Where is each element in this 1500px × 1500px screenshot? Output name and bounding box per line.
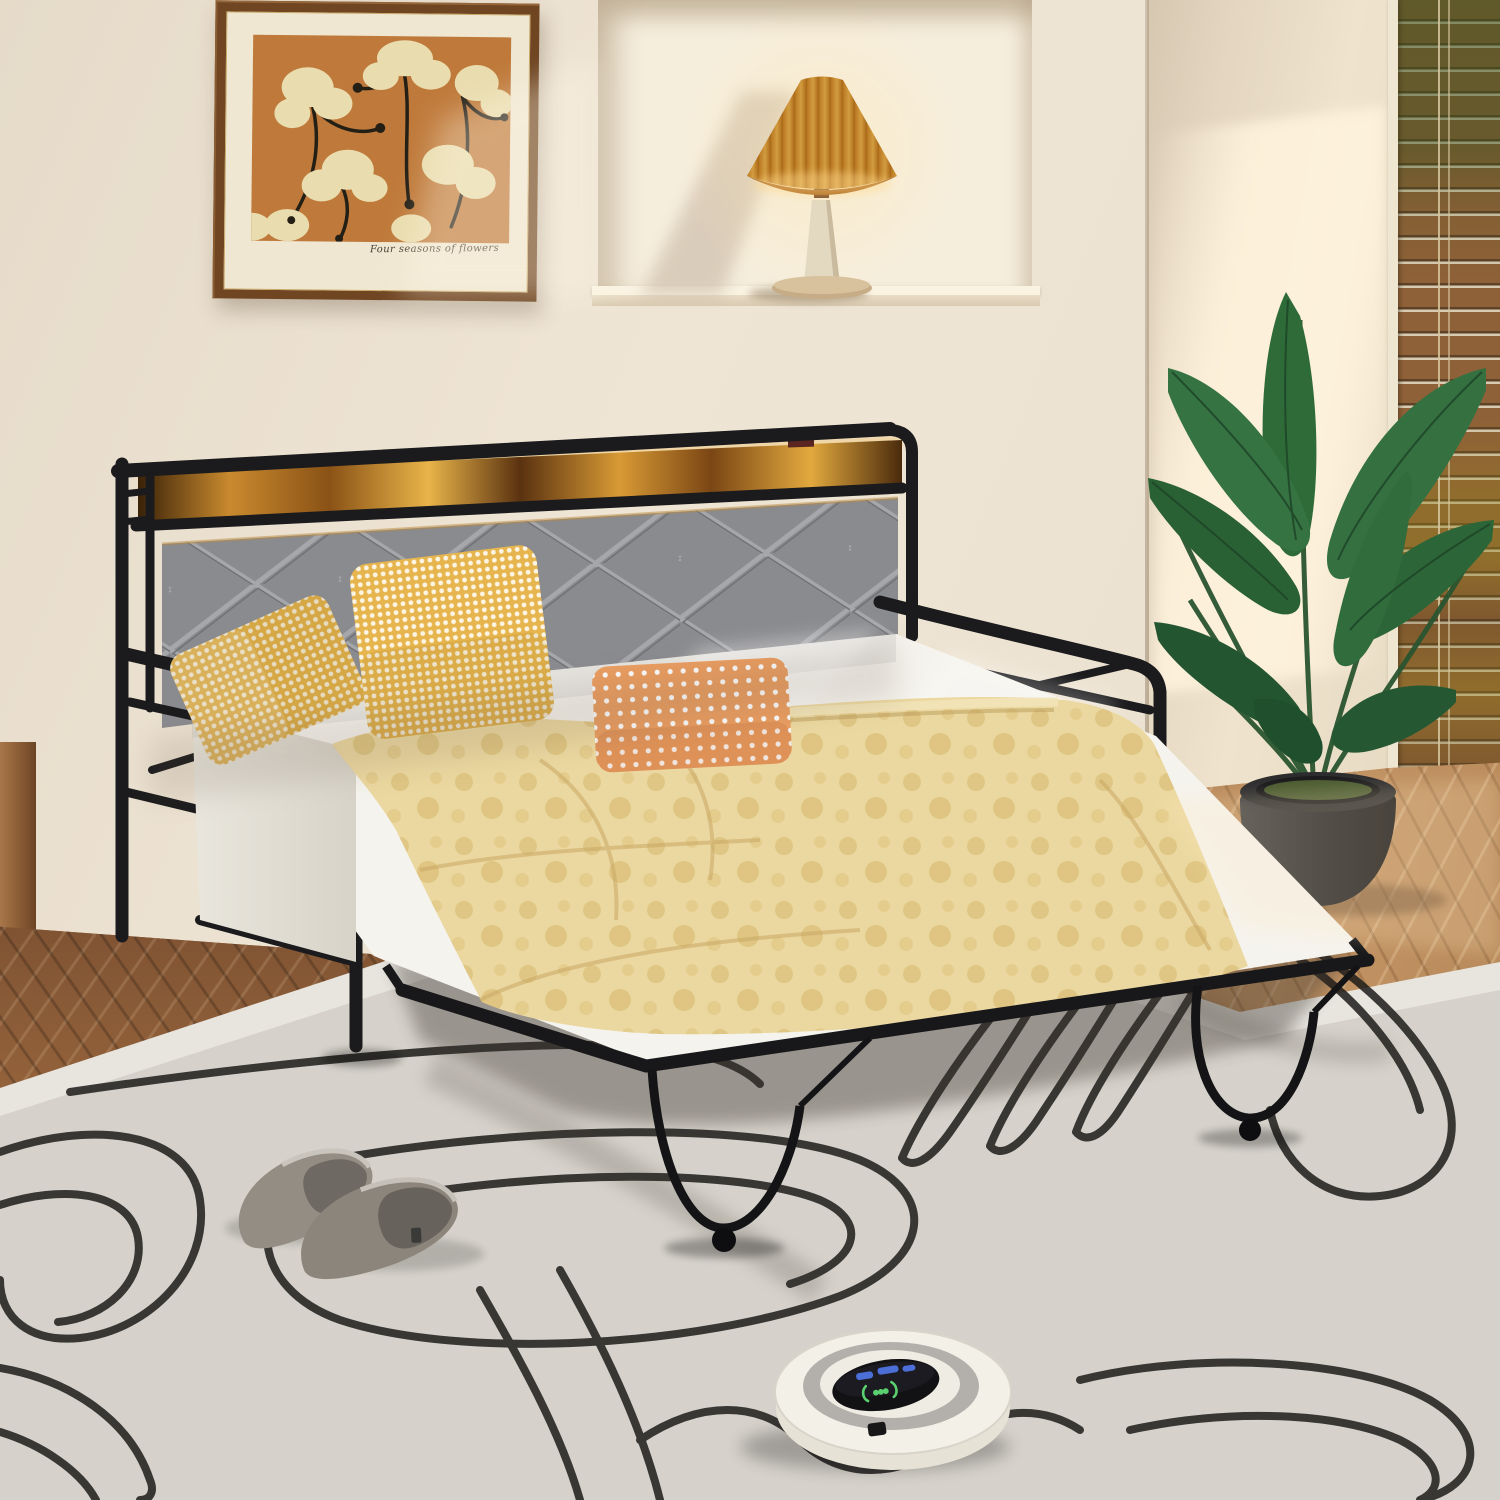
lamp-under-glow [752, 172, 892, 196]
caster-wheel [1239, 1119, 1261, 1141]
caster-wheel [712, 1228, 736, 1252]
scene-graphics [0, 0, 1500, 1500]
bedroom-scene: Four seasons of flowers [0, 0, 1500, 1500]
table-lamp [640, 0, 972, 302]
vacuum-bumper-sensor [867, 1421, 887, 1436]
lamp-base-top [774, 276, 870, 294]
plant-leaves [1148, 292, 1494, 764]
slipper-tag [411, 1228, 422, 1243]
